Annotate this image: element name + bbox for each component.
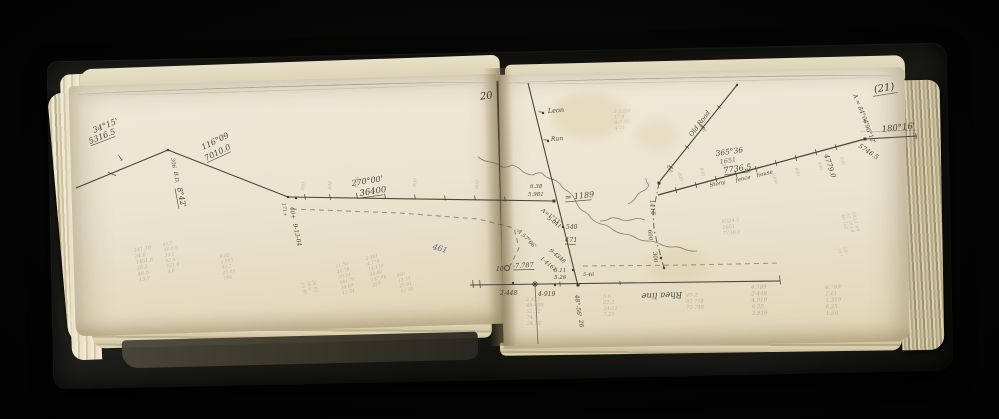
page-stain bbox=[648, 248, 708, 284]
page-number-left: 20 bbox=[479, 90, 493, 102]
page-stain bbox=[552, 92, 626, 138]
page-stain bbox=[636, 120, 678, 150]
notebook-page-left bbox=[68, 74, 503, 337]
notebook-photo: 34°15'5316.5↘306B.D.8°42'116°097010.0171… bbox=[0, 0, 999, 419]
page-edge-line bbox=[507, 73, 897, 85]
